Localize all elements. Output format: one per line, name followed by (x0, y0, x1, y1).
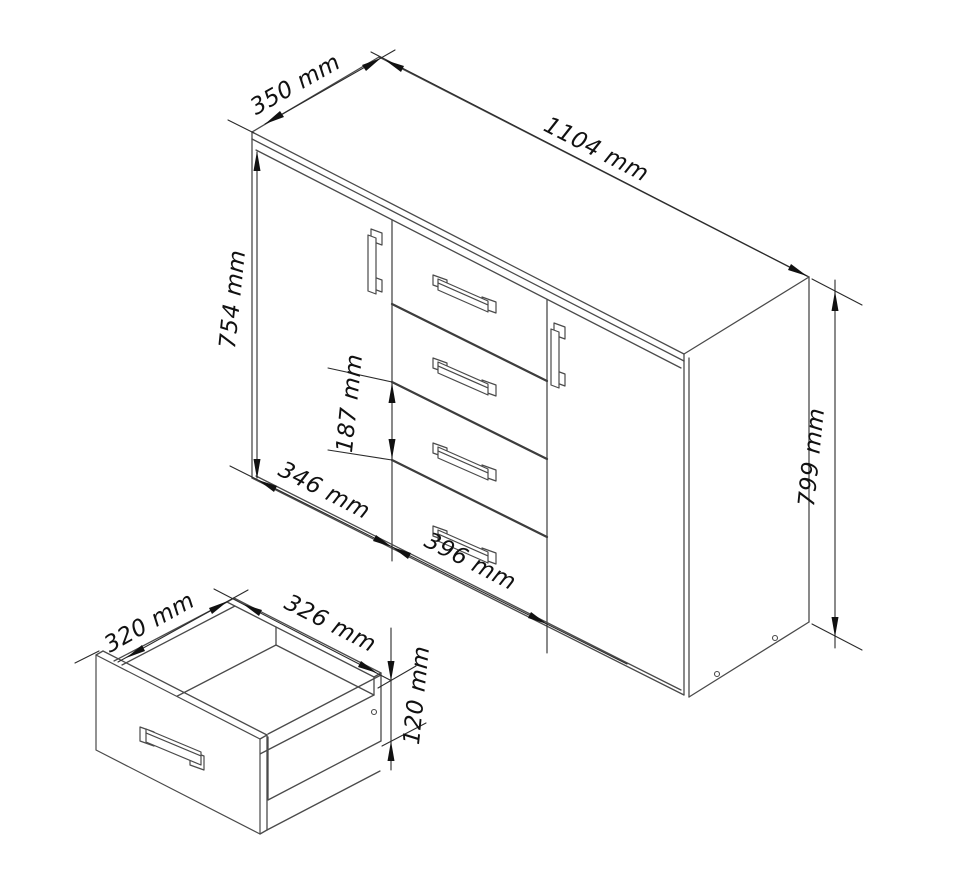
drawer-front-dividers (392, 304, 547, 537)
dim-box-height-120: 120 mm (378, 628, 435, 770)
furniture-dimension-diagram: 350 mm 1104 mm 754 mm 187 mm 346 mm 396 … (0, 0, 960, 887)
left-door-handle (368, 229, 382, 294)
dim-label-side-height: 799 mm (794, 407, 830, 508)
dim-label-drawer-pitch: 187 mm (332, 353, 368, 454)
dim-box-width-326: 326 mm (214, 589, 390, 680)
dim-front-height-754: 754 mm (215, 151, 261, 479)
screw-hole (372, 710, 377, 715)
right-door-handle (551, 323, 565, 388)
dim-label-front-height: 754 mm (215, 249, 251, 350)
technical-drawing-svg: 350 mm 1104 mm 754 mm 187 mm 346 mm 396 … (0, 0, 960, 887)
dim-label-cabinet-depth: 350 mm (246, 49, 345, 120)
drawer-handles (433, 275, 496, 564)
dim-label-cabinet-width: 1104 mm (540, 112, 653, 187)
cabinet-view (252, 57, 809, 697)
dim-drawer-section-width-396: 396 mm (392, 528, 547, 624)
dim-drawer-pitch-187: 187 mm (328, 353, 396, 460)
dim-side-height-799: 799 mm (794, 279, 862, 650)
screw-hole (773, 636, 778, 641)
dim-label-box-height: 120 mm (399, 645, 435, 746)
cabinet-top-panel (252, 57, 809, 361)
drawer-front-panel (96, 651, 380, 834)
screw-hole (715, 672, 720, 677)
dim-label-box-depth: 320 mm (100, 588, 199, 659)
